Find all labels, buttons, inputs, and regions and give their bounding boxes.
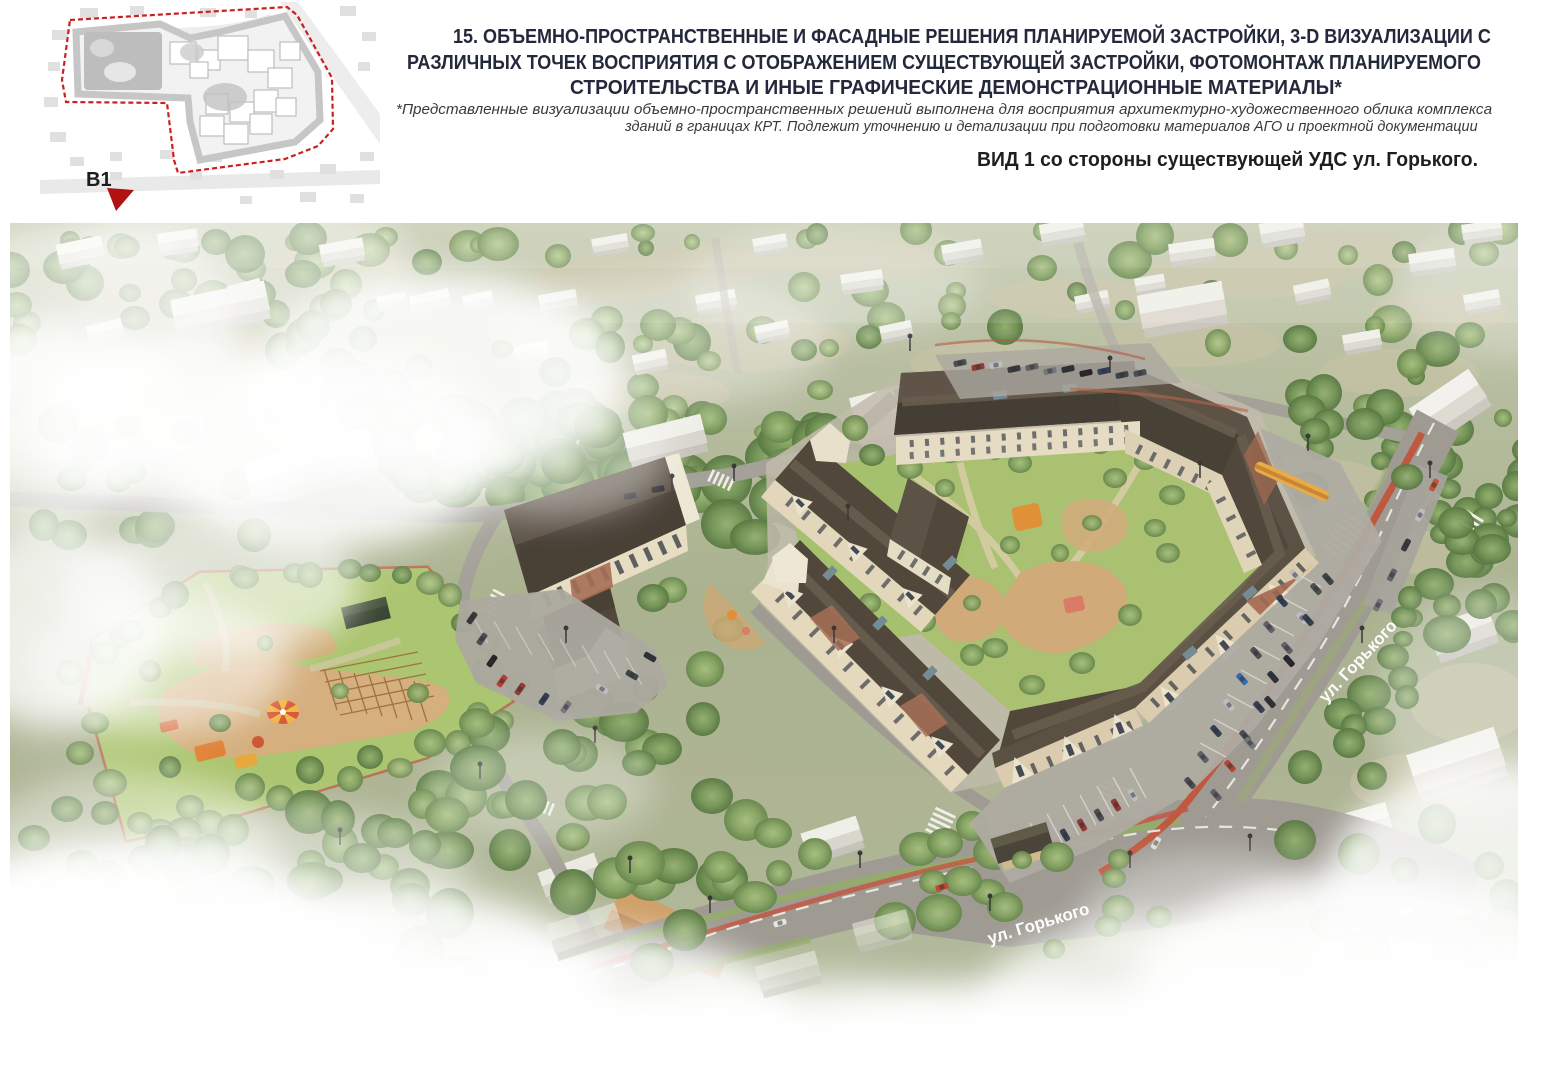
svg-text:B1: B1: [86, 169, 112, 191]
